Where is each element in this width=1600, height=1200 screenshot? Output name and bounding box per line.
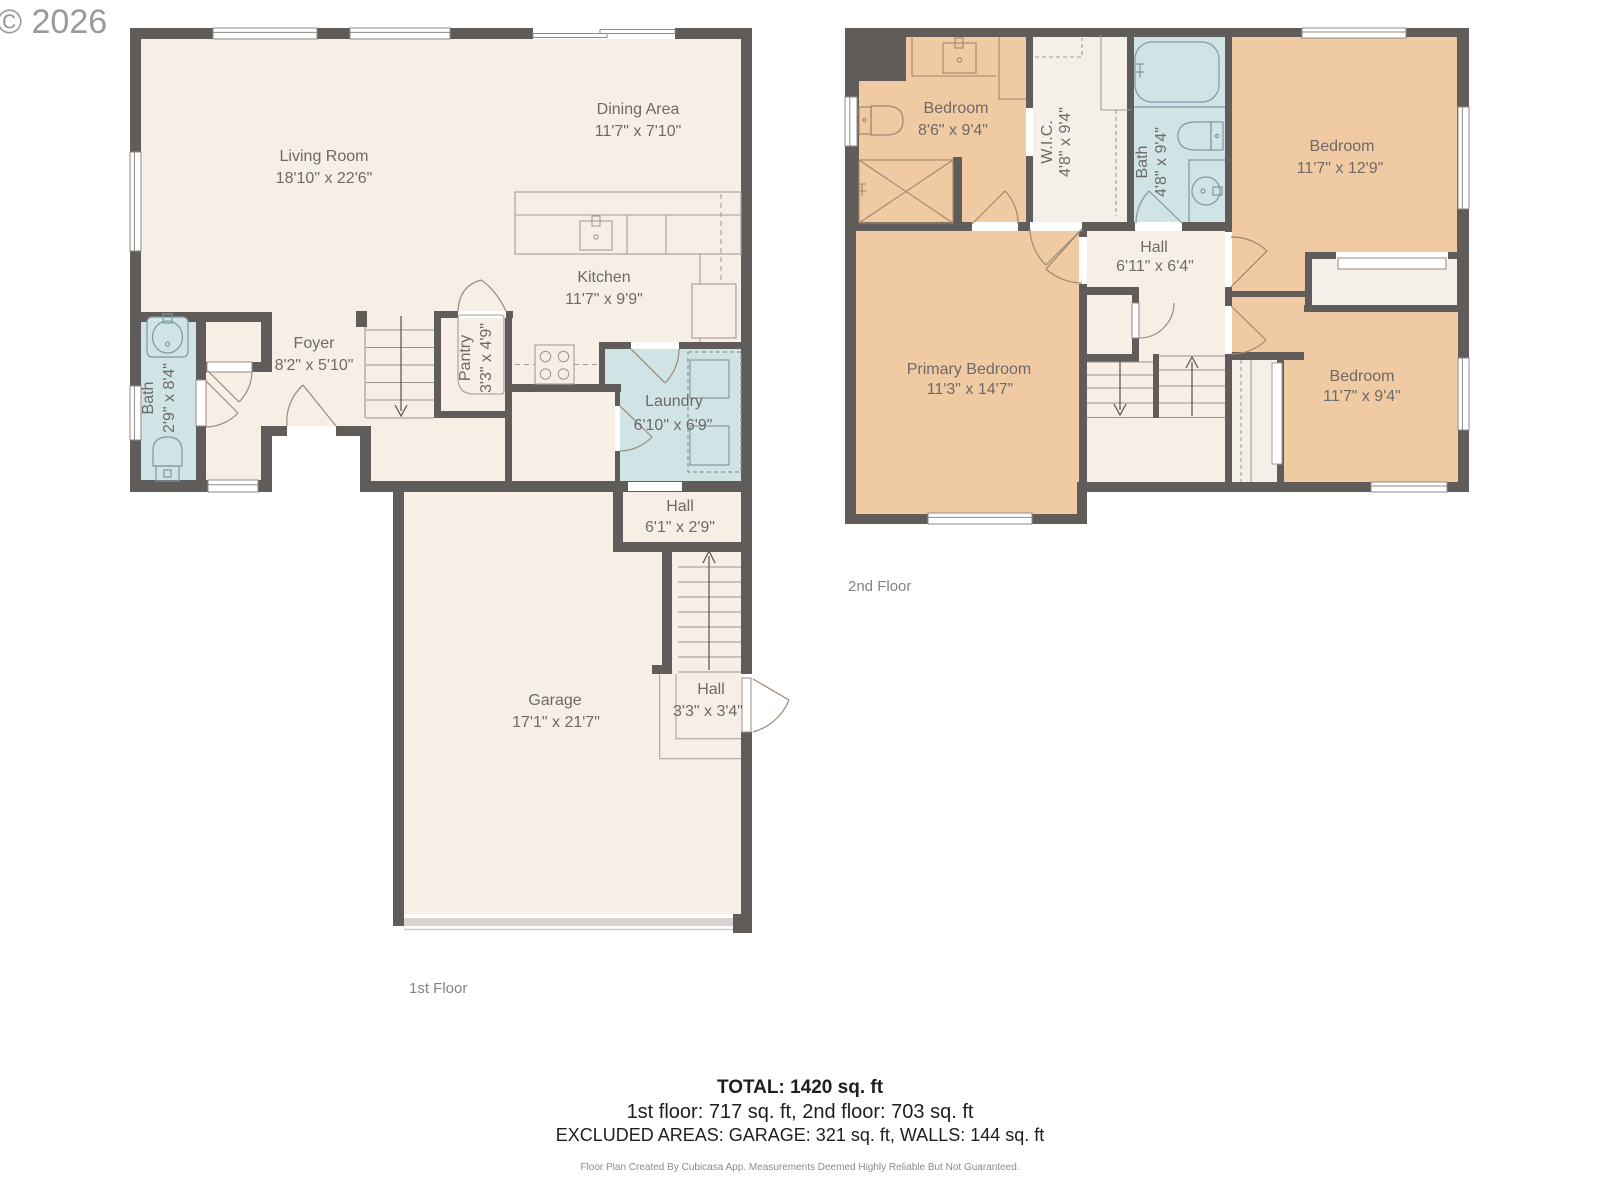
svg-text:11'7" x 9'4": 11'7" x 9'4" [1323, 388, 1401, 405]
svg-text:8'2" x 5'10": 8'2" x 5'10" [275, 357, 354, 374]
svg-text:4'8" x 9'4": 4'8" x 9'4" [1153, 127, 1170, 197]
svg-text:4'8" x 9'4": 4'8" x 9'4" [1057, 107, 1074, 177]
svg-text:Garage: Garage [528, 692, 581, 709]
svg-text:Floor Plan Created By Cubicasa: Floor Plan Created By Cubicasa App. Meas… [580, 1162, 1019, 1173]
svg-text:Dining Area: Dining Area [597, 101, 680, 118]
svg-text:1st floor: 717 sq. ft, 2nd flo: 1st floor: 717 sq. ft, 2nd floor: 703 sq… [627, 1101, 974, 1123]
svg-text:Bath: Bath [140, 382, 157, 415]
svg-text:11'3" x 14'7": 11'3" x 14'7" [927, 381, 1014, 398]
svg-text:11'7" x 7'10": 11'7" x 7'10" [595, 123, 682, 140]
svg-text:3'3" x 4'9": 3'3" x 4'9" [478, 323, 495, 393]
svg-text:EXCLUDED AREAS: GARAGE: 321 sq: EXCLUDED AREAS: GARAGE: 321 sq. ft, WALL… [556, 1125, 1045, 1145]
svg-text:Kitchen: Kitchen [577, 269, 630, 286]
svg-text:TOTAL: 1420 sq. ft: TOTAL: 1420 sq. ft [717, 1077, 884, 1098]
svg-text:8'6" x 9'4": 8'6" x 9'4" [918, 122, 988, 139]
svg-text:11'7" x 12'9": 11'7" x 12'9" [1297, 160, 1384, 177]
svg-text:Living Room: Living Room [280, 148, 369, 165]
svg-text:Bedroom: Bedroom [1310, 138, 1375, 155]
svg-text:W.I.C.: W.I.C. [1039, 120, 1056, 164]
svg-text:Bath: Bath [1134, 146, 1151, 179]
svg-text:11'7" x 9'9": 11'7" x 9'9" [565, 291, 643, 308]
svg-text:6'10" x 6'9": 6'10" x 6'9" [634, 417, 713, 434]
svg-text:Bedroom: Bedroom [924, 100, 989, 117]
svg-text:Hall: Hall [1140, 239, 1168, 256]
svg-text:6'11" x 6'4": 6'11" x 6'4" [1116, 258, 1194, 275]
svg-text:17'1" x 21'7": 17'1" x 21'7" [512, 714, 600, 731]
svg-text:2nd Floor: 2nd Floor [848, 578, 911, 595]
svg-text:© 2026: © 2026 [0, 3, 107, 41]
svg-text:1st Floor: 1st Floor [409, 980, 467, 997]
svg-text:Foyer: Foyer [294, 335, 336, 352]
svg-text:Primary Bedroom: Primary Bedroom [907, 361, 1031, 378]
svg-text:3'3" x 3'4": 3'3" x 3'4" [673, 703, 743, 720]
svg-text:Hall: Hall [697, 681, 725, 698]
svg-text:Hall: Hall [666, 498, 694, 515]
svg-text:Bedroom: Bedroom [1330, 368, 1395, 385]
svg-text:Pantry: Pantry [457, 335, 474, 381]
svg-text:6'1" x 2'9": 6'1" x 2'9" [645, 519, 715, 536]
svg-text:18'10" x 22'6": 18'10" x 22'6" [276, 170, 373, 187]
svg-text:Laundry: Laundry [645, 393, 703, 410]
svg-text:2'9" x 8'4": 2'9" x 8'4" [161, 363, 178, 433]
